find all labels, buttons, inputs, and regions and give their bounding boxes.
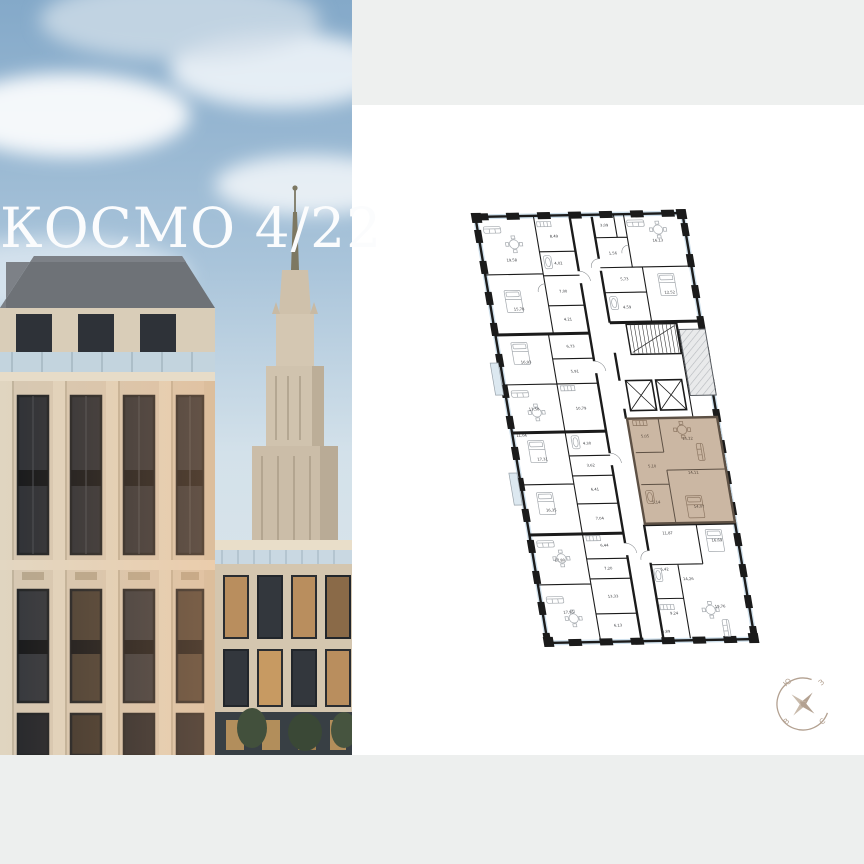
- room-area-label: 13,33: [607, 594, 619, 598]
- stairs: [626, 324, 681, 355]
- compass-letter-west: З: [817, 677, 827, 687]
- room-area-label: 5,10: [648, 464, 658, 468]
- building-left: [0, 256, 215, 755]
- room-area-label: 17,80: [554, 558, 566, 562]
- bottom-gray-band: [0, 755, 864, 864]
- room-area-label: 16,35: [546, 508, 558, 512]
- room-area-label: 7,04: [595, 517, 605, 521]
- room-area-label: 6,44: [600, 544, 610, 548]
- room-area-label: 12,52: [664, 290, 675, 294]
- room-area-label: 10,79: [576, 406, 588, 410]
- room-area-label: 4,59: [623, 305, 633, 309]
- room-area-label: 16,93: [521, 360, 533, 364]
- room-area-label: 14,07: [694, 505, 706, 509]
- room-area-label: 5,42: [660, 567, 669, 571]
- room-area-label: 6,41: [590, 488, 600, 492]
- room-area-label: 6,73: [566, 345, 576, 349]
- compass-rose: Ю З В С: [766, 658, 842, 744]
- room-area-label: 5,05: [641, 434, 651, 438]
- room-area-label: 17,31: [537, 457, 549, 461]
- room-area-label: 4,21: [564, 317, 574, 321]
- room-area-label: 7,20: [604, 567, 614, 571]
- room-area-label: 19,76: [715, 604, 727, 608]
- project-title: КОСМО 4/22: [0, 196, 352, 260]
- room-area-label: 5,14: [652, 500, 662, 504]
- room-area-label: 14,26: [683, 577, 695, 581]
- room-area-label: 1,56: [609, 251, 619, 255]
- room-area-label: 5,91: [570, 370, 580, 374]
- room-area-label: 15,22: [682, 437, 693, 441]
- room-area-label: 6,13: [614, 624, 624, 628]
- room-area-label: 13,58: [529, 407, 541, 411]
- floor-plan: 19,588,494,027,0015,784,2116,936,735,911…: [473, 211, 757, 645]
- room-area-label: 9,24: [670, 611, 680, 615]
- room-area-label: 17,95: [563, 610, 575, 614]
- room-area-label: 11,04: [516, 434, 528, 438]
- room-area-label: 19,58: [506, 258, 518, 262]
- room-area-label: 3,62: [586, 464, 595, 468]
- room-area-label: 15,78: [514, 307, 526, 311]
- room-area-label: 14,11: [688, 471, 700, 475]
- room-area-label: 3,09: [600, 223, 610, 227]
- room-area-label: 8,49: [549, 234, 559, 238]
- room-area-label: 16,69: [711, 538, 723, 542]
- compass-letter-east: В: [781, 716, 791, 726]
- room-area-label: 5,89: [662, 630, 672, 634]
- building-right: [215, 540, 352, 755]
- building-photo: [0, 0, 352, 755]
- room-area-label: 16,13: [652, 238, 664, 242]
- room-area-label: 11,87: [662, 531, 674, 535]
- room-area-label: 4,02: [554, 261, 563, 265]
- room-area-label: 4,30: [583, 442, 593, 446]
- room-area-label: 7,00: [559, 289, 569, 293]
- room-area-label: 5,73: [620, 277, 630, 281]
- highlighted-unit: [627, 417, 735, 524]
